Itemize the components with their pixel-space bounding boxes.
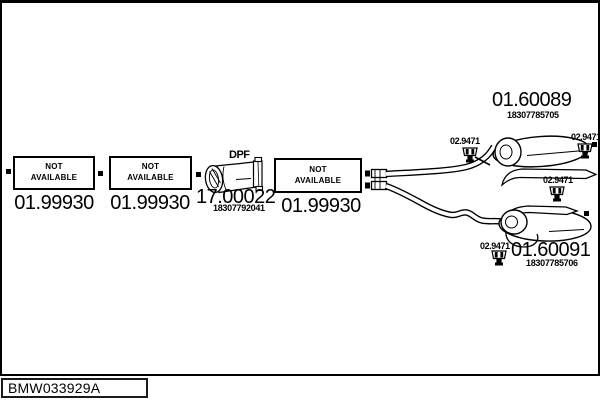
oem-number-dpf: 18307792041 bbox=[213, 204, 265, 213]
part-number-hanger-3[interactable]: 02.9471 bbox=[543, 176, 573, 185]
drawing-reference-box: BMW033929A bbox=[1, 378, 148, 398]
hanger-icon-1 bbox=[463, 148, 477, 163]
not-available-text: NOT bbox=[309, 165, 327, 176]
part-number-hanger-2[interactable]: 02.9471 bbox=[571, 133, 600, 142]
part-number-front-2[interactable]: 01.99930 bbox=[104, 193, 196, 214]
not-available-text: NOT bbox=[142, 162, 160, 173]
part-number-hanger-1[interactable]: 02.9471 bbox=[450, 137, 480, 146]
connector-square-1 bbox=[6, 169, 11, 174]
not-available-box-2: NOT AVAILABLE bbox=[109, 156, 192, 190]
parts-diagram-page: NOT AVAILABLE NOT AVAILABLE NOT AVAILABL… bbox=[0, 0, 600, 400]
hanger-icon-4 bbox=[492, 251, 506, 266]
not-available-text: NOT bbox=[45, 162, 63, 173]
connector-square-3 bbox=[196, 172, 201, 177]
dpf-label: DPF bbox=[229, 150, 250, 162]
part-number-front-3[interactable]: 01.99930 bbox=[275, 196, 367, 217]
part-number-upper-muffler[interactable]: 01.60089 bbox=[492, 90, 571, 111]
oem-number-upper-muffler: 18307785705 bbox=[507, 111, 559, 120]
not-available-box-1: NOT AVAILABLE bbox=[13, 156, 95, 190]
pipe-flange-drawing bbox=[365, 170, 387, 190]
part-number-hanger-4[interactable]: 02.9471 bbox=[480, 242, 510, 251]
upper-pipe-drawing bbox=[386, 147, 494, 175]
lower-pipe-drawing bbox=[386, 186, 501, 222]
not-available-text: AVAILABLE bbox=[295, 176, 341, 187]
oem-number-lower-muffler: 18307785706 bbox=[526, 259, 578, 268]
hanger-icon-3 bbox=[550, 187, 564, 202]
drawing-reference-code: BMW033929A bbox=[8, 380, 100, 396]
not-available-text: AVAILABLE bbox=[31, 173, 77, 184]
part-number-front-1[interactable]: 01.99930 bbox=[8, 193, 100, 214]
not-available-box-3: NOT AVAILABLE bbox=[274, 158, 362, 193]
not-available-text: AVAILABLE bbox=[127, 173, 173, 184]
connector-square-2 bbox=[98, 171, 103, 176]
